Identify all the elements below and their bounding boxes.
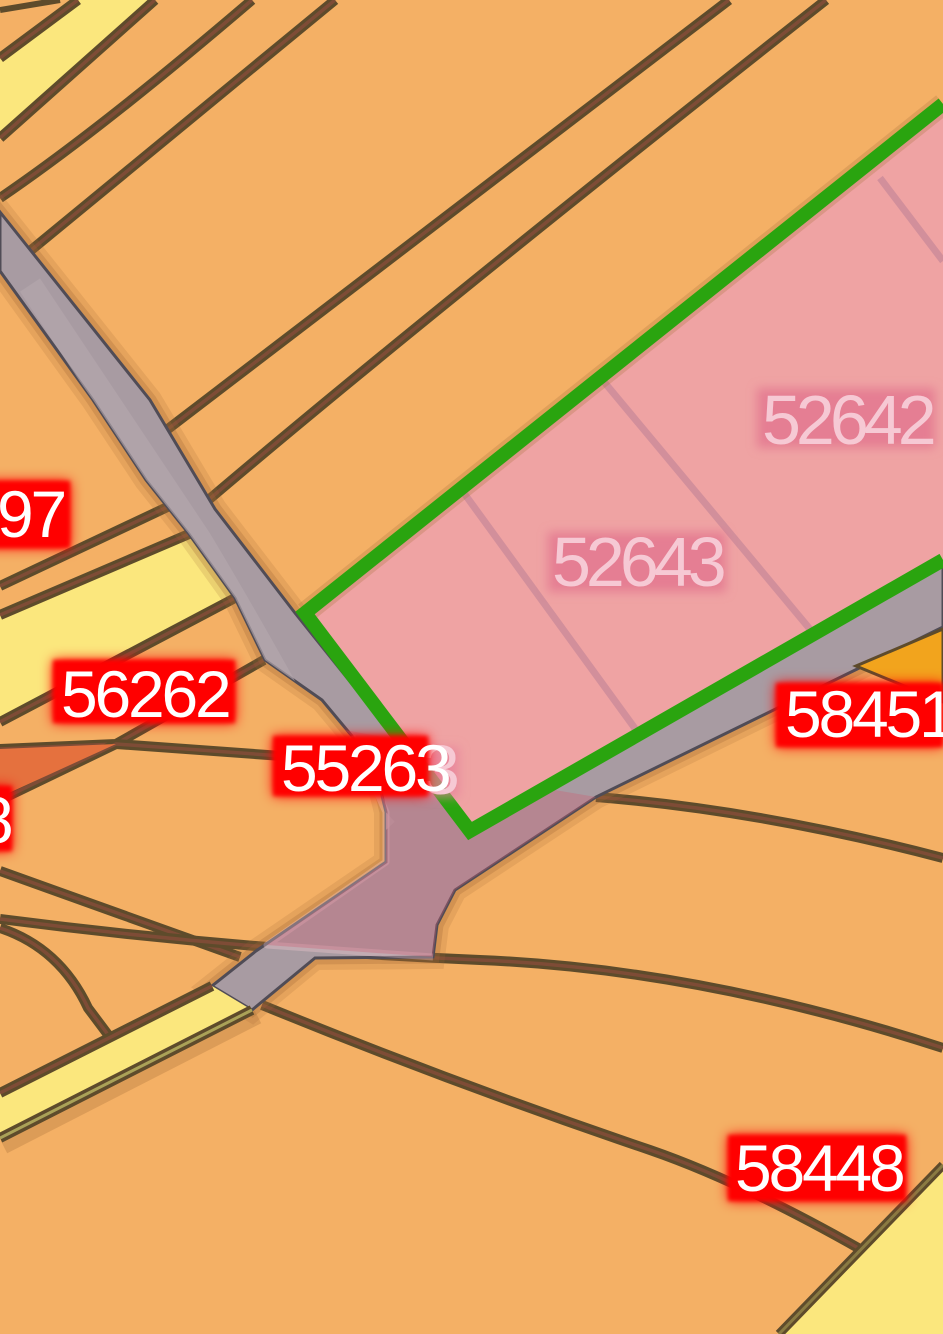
svg-text:8: 8 [0, 783, 11, 857]
svg-text:58448: 58448 [735, 1131, 903, 1205]
svg-text:97: 97 [0, 477, 65, 551]
svg-text:52642: 52642 [762, 381, 934, 459]
svg-text:55263: 55263 [281, 731, 449, 805]
svg-text:58451: 58451 [785, 677, 943, 751]
svg-text:56262: 56262 [61, 657, 229, 731]
svg-text:52643: 52643 [552, 523, 724, 601]
